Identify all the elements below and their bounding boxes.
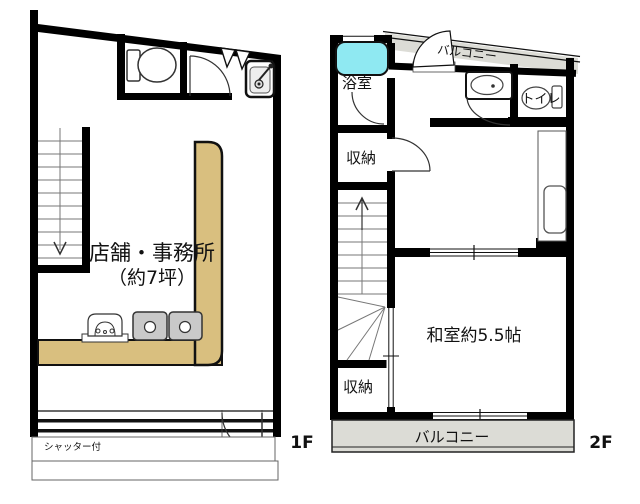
japanese-room-label: 和室約5.5帖 — [426, 326, 521, 346]
stove-icon — [82, 314, 128, 342]
floor-plan-page: 店舗・事務所 （約7坪） シャッター付 1F — [0, 0, 640, 504]
washbasin-icon — [466, 72, 512, 125]
floor1-label: 1F — [290, 433, 313, 453]
floor1-stairs-down — [38, 128, 82, 258]
toilet-label: トイレ — [521, 92, 560, 107]
floor1-plan: 店舗・事務所 （約7坪） シャッター付 1F — [30, 10, 314, 480]
storage-door-swing-icon — [392, 138, 430, 171]
side-closet-strip — [538, 131, 566, 241]
shop-area-label: （約7坪） — [108, 267, 196, 289]
shutter-label: シャッター付 — [44, 442, 102, 453]
kitchen-sinks-icon — [133, 312, 202, 340]
shutter-lines — [38, 410, 273, 437]
toilet-icon — [127, 48, 176, 82]
storage-lower-label: 収納 — [343, 378, 373, 396]
floor-plan-svg: 店舗・事務所 （約7坪） シャッター付 1F — [0, 0, 640, 504]
floor2-stairs-up — [338, 198, 387, 360]
storage-upper-label: 収納 — [346, 149, 376, 167]
bath-label: 浴室 — [342, 74, 372, 92]
bath-door-swing-icon — [352, 92, 384, 124]
hand-sink-icon — [246, 61, 274, 97]
bathtub-icon — [336, 42, 388, 75]
floor2-label: 2F — [589, 433, 612, 453]
shop-label: 店舗・事務所 — [89, 241, 215, 265]
balcony-bottom-label: バルコニー — [415, 428, 490, 446]
fusuma-sliding-door-icon — [383, 308, 399, 407]
floor2-plan: 浴室 バルコニー トイレ 収納 収納 和室約5.5帖 バルコニー 2F — [330, 31, 613, 453]
door-swing-icon — [190, 56, 230, 96]
sliding-door-top-icon — [430, 245, 518, 260]
